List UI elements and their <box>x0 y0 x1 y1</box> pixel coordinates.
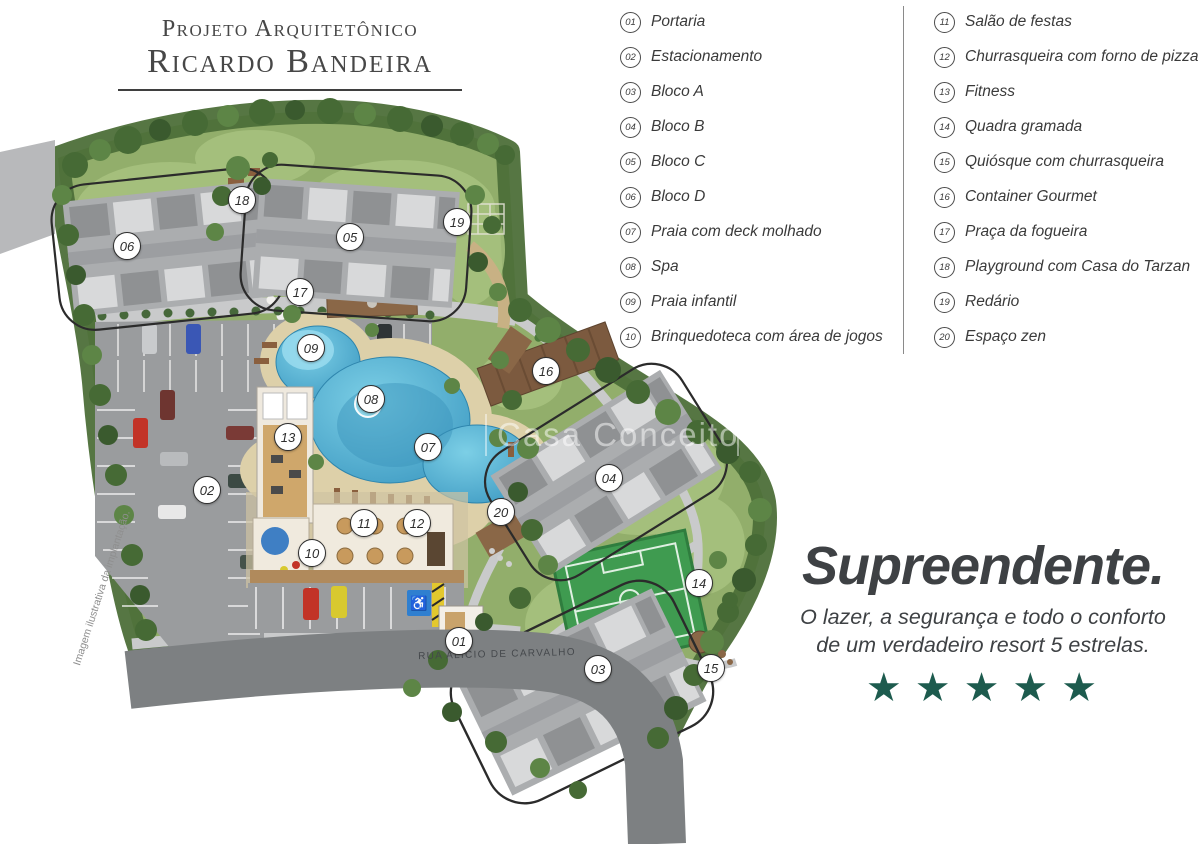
legend-number-badge: 14 <box>934 117 955 138</box>
five-stars-icon: ★★★★★ <box>798 665 1178 711</box>
page: Projeto Arquitetônico Ricardo Bandeira 0… <box>0 0 1200 844</box>
legend-number-badge: 18 <box>934 257 955 278</box>
legend-column-2: 11Salão de festas 12Churrasqueira com fo… <box>934 10 1198 360</box>
watermark: Casa Conceito <box>485 414 739 456</box>
legend-number-badge: 11 <box>934 12 955 33</box>
map-marker-03: 03 <box>584 655 612 683</box>
tagline-line2: de um verdadeiro resort 5 estrelas. <box>816 633 1149 657</box>
legend-item: 16Container Gourmet <box>934 185 1198 209</box>
map-marker-05: 05 <box>336 223 364 251</box>
legend-number-badge: 20 <box>934 327 955 348</box>
map-marker-15: 15 <box>697 654 725 682</box>
legend-number-badge: 16 <box>934 187 955 208</box>
map-marker-14: 14 <box>685 569 713 597</box>
map-marker-13: 13 <box>274 423 302 451</box>
legend-label: Container Gourmet <box>965 188 1097 206</box>
legend-item: 17Praça da fogueira <box>934 220 1198 244</box>
map-marker-18: 18 <box>228 186 256 214</box>
legend-number-badge: 17 <box>934 222 955 243</box>
legend-item: 19Redário <box>934 290 1198 314</box>
tagline-subtitle: O lazer, a segurança e todo o conforto d… <box>788 603 1178 660</box>
svg-text:♿: ♿ <box>410 595 427 612</box>
tagline-line1: O lazer, a segurança e todo o conforto <box>800 605 1166 629</box>
legend-item: 11Salão de festas <box>934 10 1198 34</box>
legend-label: Redário <box>965 293 1019 311</box>
map-marker-16: 16 <box>532 357 560 385</box>
legend-label: Quadra gramada <box>965 118 1082 136</box>
legend-label: Praça da fogueira <box>965 223 1087 241</box>
legend-number-badge: 19 <box>934 292 955 313</box>
map-marker-17: 17 <box>286 278 314 306</box>
map-marker-19: 19 <box>443 208 471 236</box>
legend-item: 12Churrasqueira com forno de pizza <box>934 45 1198 69</box>
map-marker-12: 12 <box>403 509 431 537</box>
legend-label: Fitness <box>965 83 1015 101</box>
legend-item: 18Playground com Casa do Tarzan <box>934 255 1198 279</box>
map-marker-04: 04 <box>595 464 623 492</box>
map-marker-08: 08 <box>357 385 385 413</box>
legend-divider <box>903 6 904 354</box>
tagline-block: Supreendente. O lazer, a segurança e tod… <box>788 538 1178 711</box>
site-plan: ♿ <box>0 0 780 844</box>
legend-label: Churrasqueira com forno de pizza <box>965 48 1198 66</box>
legend-item: 14Quadra gramada <box>934 115 1198 139</box>
map-marker-09: 09 <box>297 334 325 362</box>
legend-number-badge: 13 <box>934 82 955 103</box>
map-marker-07: 07 <box>414 433 442 461</box>
legend-label: Espaço zen <box>965 328 1046 346</box>
legend-number-badge: 15 <box>934 152 955 173</box>
map-marker-06: 06 <box>113 232 141 260</box>
legend-item: 15Quiósque com churrasqueira <box>934 150 1198 174</box>
map-marker-02: 02 <box>193 476 221 504</box>
legend-label: Salão de festas <box>965 13 1072 31</box>
map-marker-10: 10 <box>298 539 326 567</box>
legend-label: Playground com Casa do Tarzan <box>965 258 1190 276</box>
map-marker-01: 01 <box>445 627 473 655</box>
legend-number-badge: 12 <box>934 47 955 68</box>
legend-item: 20Espaço zen <box>934 325 1198 349</box>
tagline-headline: Supreendente. <box>788 538 1178 595</box>
legend-item: 13Fitness <box>934 80 1198 104</box>
legend-label: Quiósque com churrasqueira <box>965 153 1164 171</box>
map-marker-11: 11 <box>350 509 378 537</box>
map-marker-20: 20 <box>487 498 515 526</box>
